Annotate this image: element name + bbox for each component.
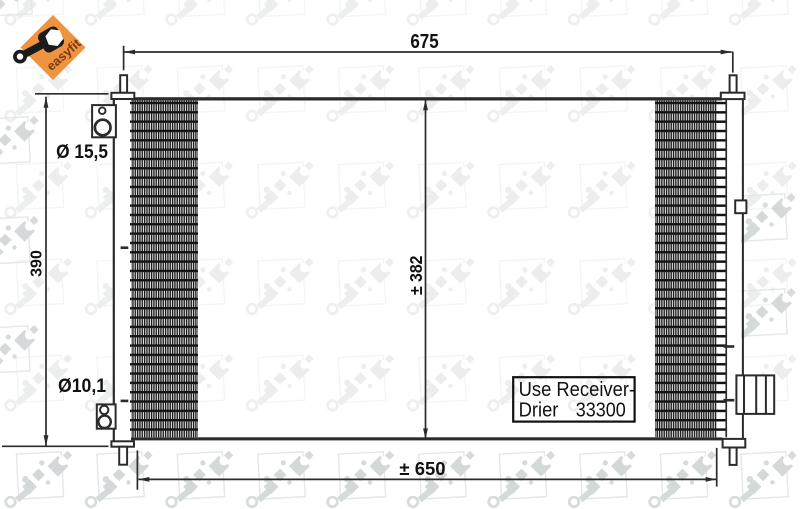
svg-text:Ø10,1: Ø10,1 xyxy=(58,375,106,397)
svg-text:± 382: ± 382 xyxy=(406,256,426,295)
svg-text:675: 675 xyxy=(410,30,438,53)
svg-text:Use Receiver-: Use Receiver- xyxy=(519,379,635,401)
svg-text:Ø 15,5: Ø 15,5 xyxy=(56,141,108,162)
svg-text:390: 390 xyxy=(29,250,46,277)
svg-text:Drier: Drier xyxy=(519,400,559,422)
svg-text:± 650: ± 650 xyxy=(399,458,445,479)
svg-text:33300: 33300 xyxy=(576,400,626,422)
